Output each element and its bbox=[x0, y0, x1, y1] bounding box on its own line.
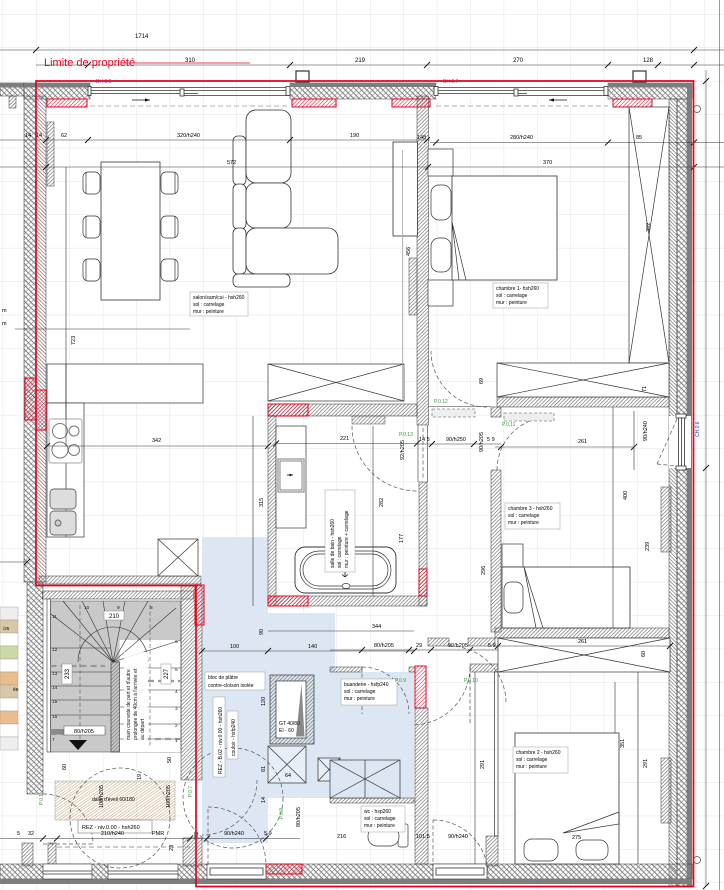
svg-text:23: 23 bbox=[169, 845, 175, 851]
svg-text:mur : peinture: mur : peinture bbox=[508, 520, 539, 526]
svg-text:29: 29 bbox=[416, 643, 422, 649]
svg-text:10: 10 bbox=[84, 605, 90, 611]
svg-text:7: 7 bbox=[52, 737, 55, 743]
svg-text:14: 14 bbox=[52, 685, 58, 691]
svg-text:11: 11 bbox=[52, 614, 57, 620]
svg-text:wc - hsp260: wc - hsp260 bbox=[364, 809, 391, 815]
svg-text:62: 62 bbox=[61, 133, 67, 139]
svg-text:261: 261 bbox=[578, 439, 587, 445]
svg-text:salon/sam/cui - hsh260: salon/sam/cui - hsh260 bbox=[193, 295, 245, 301]
svg-text:P.0.8: P.0.8 bbox=[279, 808, 285, 819]
svg-text:chambre 1- hsh260: chambre 1- hsh260 bbox=[496, 286, 539, 292]
svg-text:90/h205: 90/h205 bbox=[479, 432, 485, 452]
svg-text:148: 148 bbox=[417, 135, 426, 141]
svg-text:sol : carrelage: sol : carrelage bbox=[516, 757, 548, 763]
svg-text:salle de bain - hsh260: salle de bain - hsh260 bbox=[330, 519, 336, 568]
svg-text:mur : peinture: mur : peinture bbox=[364, 823, 395, 829]
svg-text:PMR: PMR bbox=[152, 831, 164, 837]
svg-text:5: 5 bbox=[17, 831, 20, 837]
svg-text:14: 14 bbox=[36, 133, 42, 139]
svg-text:8: 8 bbox=[150, 605, 153, 611]
svg-text:69: 69 bbox=[479, 378, 485, 384]
svg-text:128: 128 bbox=[643, 58, 654, 64]
svg-text:282: 282 bbox=[379, 498, 385, 507]
svg-text:140: 140 bbox=[308, 644, 317, 650]
svg-text:210/h240: 210/h240 bbox=[101, 831, 124, 837]
svg-text:m: m bbox=[2, 321, 7, 327]
svg-text:sol : carrelage: sol : carrelage bbox=[337, 536, 343, 568]
svg-text:456: 456 bbox=[406, 247, 412, 256]
svg-text:210: 210 bbox=[109, 614, 120, 620]
svg-text:60: 60 bbox=[62, 764, 68, 770]
svg-text:190: 190 bbox=[350, 133, 359, 139]
svg-text:buanderie - hsfp240: buanderie - hsfp240 bbox=[344, 682, 389, 688]
svg-text:342: 342 bbox=[152, 438, 161, 444]
svg-text:275: 275 bbox=[572, 835, 581, 841]
svg-text:mur : peinture: mur : peinture bbox=[516, 764, 547, 770]
svg-text:291: 291 bbox=[643, 759, 649, 768]
svg-text:64: 64 bbox=[285, 773, 291, 779]
svg-text:177: 177 bbox=[399, 534, 405, 543]
svg-text:3: 3 bbox=[175, 706, 178, 712]
svg-text:GT 40/80: GT 40/80 bbox=[279, 721, 300, 727]
svg-text:60: 60 bbox=[641, 651, 647, 657]
svg-text:1714: 1714 bbox=[135, 34, 149, 40]
svg-text:351: 351 bbox=[620, 739, 626, 748]
svg-text:320/h240: 320/h240 bbox=[177, 133, 200, 139]
svg-text:EI - 60: EI - 60 bbox=[279, 728, 294, 734]
svg-text:90: 90 bbox=[259, 629, 265, 635]
svg-text:couloir - hsfp240: couloir - hsfp240 bbox=[231, 719, 237, 756]
svg-text:221: 221 bbox=[340, 436, 349, 442]
svg-text:P.0.7: P.0.7 bbox=[188, 786, 194, 797]
svg-text:/25: /25 bbox=[3, 626, 10, 631]
svg-text:19: 19 bbox=[137, 774, 143, 780]
svg-text:50: 50 bbox=[167, 757, 173, 763]
svg-text:sol : carrelage: sol : carrelage bbox=[364, 816, 396, 822]
svg-text:16: 16 bbox=[52, 714, 58, 720]
svg-text:270: 270 bbox=[513, 58, 524, 64]
svg-text:296: 296 bbox=[481, 566, 487, 575]
svg-text:BH 0.7: BH 0.7 bbox=[443, 79, 459, 85]
svg-text:32: 32 bbox=[28, 831, 34, 837]
svg-text:P.0.10: P.0.10 bbox=[464, 678, 478, 684]
svg-text:5 9: 5 9 bbox=[487, 437, 495, 443]
svg-text:219: 219 bbox=[355, 58, 366, 64]
svg-text:mur : peinture: mur : peinture bbox=[496, 300, 527, 306]
svg-text:5 9: 5 9 bbox=[488, 643, 496, 649]
svg-text:mur : peinture: mur : peinture bbox=[193, 309, 224, 315]
svg-text:ée: ée bbox=[13, 687, 19, 693]
svg-text:80/h205: 80/h205 bbox=[74, 729, 94, 735]
svg-text:100: 100 bbox=[230, 644, 239, 650]
svg-text:mur : peinture: mur : peinture bbox=[344, 696, 375, 702]
svg-text:315: 315 bbox=[259, 498, 265, 507]
svg-text:prolongée de 40cm à l'arrivée: prolongée de 40cm à l'arrivée et bbox=[133, 668, 139, 740]
svg-text:BH 0.6: BH 0.6 bbox=[96, 79, 112, 85]
svg-text:4: 4 bbox=[175, 689, 178, 695]
svg-text:101.5: 101.5 bbox=[416, 834, 430, 840]
svg-text:81: 81 bbox=[261, 766, 267, 772]
svg-text:5 9: 5 9 bbox=[264, 831, 272, 837]
svg-text:100/h205: 100/h205 bbox=[99, 785, 105, 808]
svg-text:13: 13 bbox=[52, 671, 58, 677]
svg-text:120: 120 bbox=[261, 697, 267, 706]
svg-text:80/h205: 80/h205 bbox=[296, 807, 302, 827]
svg-text:CH.0.6: CH.0.6 bbox=[695, 421, 701, 437]
svg-text:85: 85 bbox=[636, 135, 642, 141]
svg-text:sol : carrelage: sol : carrelage bbox=[496, 293, 528, 299]
svg-text:90/h240: 90/h240 bbox=[643, 421, 649, 441]
svg-text:Limite de propriété: Limite de propriété bbox=[44, 57, 135, 69]
svg-text:main courante de part et d'aut: main courante de part et d'autre bbox=[126, 669, 132, 740]
svg-text:239: 239 bbox=[645, 542, 651, 551]
svg-text:90/h250: 90/h250 bbox=[446, 437, 466, 443]
svg-text:sol : carrelage: sol : carrelage bbox=[508, 513, 540, 519]
svg-text:90/h205: 90/h205 bbox=[448, 643, 468, 649]
svg-text:92/h205: 92/h205 bbox=[400, 440, 406, 460]
svg-text:233: 233 bbox=[65, 668, 71, 679]
svg-text:400: 400 bbox=[623, 491, 629, 500]
svg-text:P.0.13: P.0.13 bbox=[399, 432, 413, 438]
svg-text:261: 261 bbox=[578, 639, 587, 645]
svg-text:227: 227 bbox=[164, 668, 170, 679]
svg-text:sol : carrelage: sol : carrelage bbox=[344, 689, 376, 695]
svg-text:P.0.11: P.0.11 bbox=[502, 422, 516, 428]
svg-text:90/h240: 90/h240 bbox=[224, 831, 244, 837]
svg-text:280/h240: 280/h240 bbox=[510, 135, 533, 141]
svg-text:370: 370 bbox=[543, 160, 552, 166]
svg-text:contre-cloison isolée: contre-cloison isolée bbox=[208, 683, 254, 689]
svg-text:m: m bbox=[2, 308, 7, 314]
svg-text:71: 71 bbox=[642, 386, 648, 392]
svg-text:au départ: au départ bbox=[140, 718, 146, 740]
svg-text:572: 572 bbox=[227, 160, 236, 166]
svg-text:100/h205: 100/h205 bbox=[166, 785, 172, 808]
svg-text:14 5: 14 5 bbox=[419, 437, 430, 443]
svg-text:chambre 3 - hsh260: chambre 3 - hsh260 bbox=[508, 506, 553, 512]
svg-text:chambre 2 - hsh260: chambre 2 - hsh260 bbox=[516, 750, 561, 756]
svg-text:P.0.1: P.0.1 bbox=[39, 794, 45, 805]
svg-text:216: 216 bbox=[337, 834, 346, 840]
svg-text:392: 392 bbox=[646, 223, 652, 232]
svg-text:723: 723 bbox=[71, 336, 77, 345]
svg-text:2: 2 bbox=[175, 723, 178, 729]
svg-text:6: 6 bbox=[175, 639, 178, 645]
svg-text:1: 1 bbox=[175, 738, 178, 744]
svg-text:80/h205: 80/h205 bbox=[374, 643, 394, 649]
svg-text:15: 15 bbox=[52, 699, 58, 705]
svg-text:14: 14 bbox=[261, 797, 267, 803]
svg-text:P.0.9: P.0.9 bbox=[395, 678, 406, 684]
svg-text:32: 32 bbox=[194, 832, 200, 838]
svg-text:REZ - B.02 - niv.0.00 - hsh260: REZ - B.02 - niv.0.00 - hsh260 bbox=[218, 707, 224, 774]
svg-text:sol : carrelage: sol : carrelage bbox=[193, 302, 225, 308]
svg-text:P.0.12: P.0.12 bbox=[434, 399, 448, 405]
svg-text:14: 14 bbox=[25, 133, 31, 139]
svg-text:5: 5 bbox=[175, 667, 178, 673]
svg-text:9: 9 bbox=[117, 605, 120, 611]
svg-text:291: 291 bbox=[480, 760, 486, 769]
svg-text:90/h240: 90/h240 bbox=[448, 834, 468, 840]
svg-text:mur : peinture + carrelage: mur : peinture + carrelage bbox=[344, 510, 350, 568]
svg-text:12: 12 bbox=[52, 647, 58, 653]
svg-text:bloc de plâtre: bloc de plâtre bbox=[208, 675, 238, 681]
svg-text:344: 344 bbox=[372, 624, 381, 630]
